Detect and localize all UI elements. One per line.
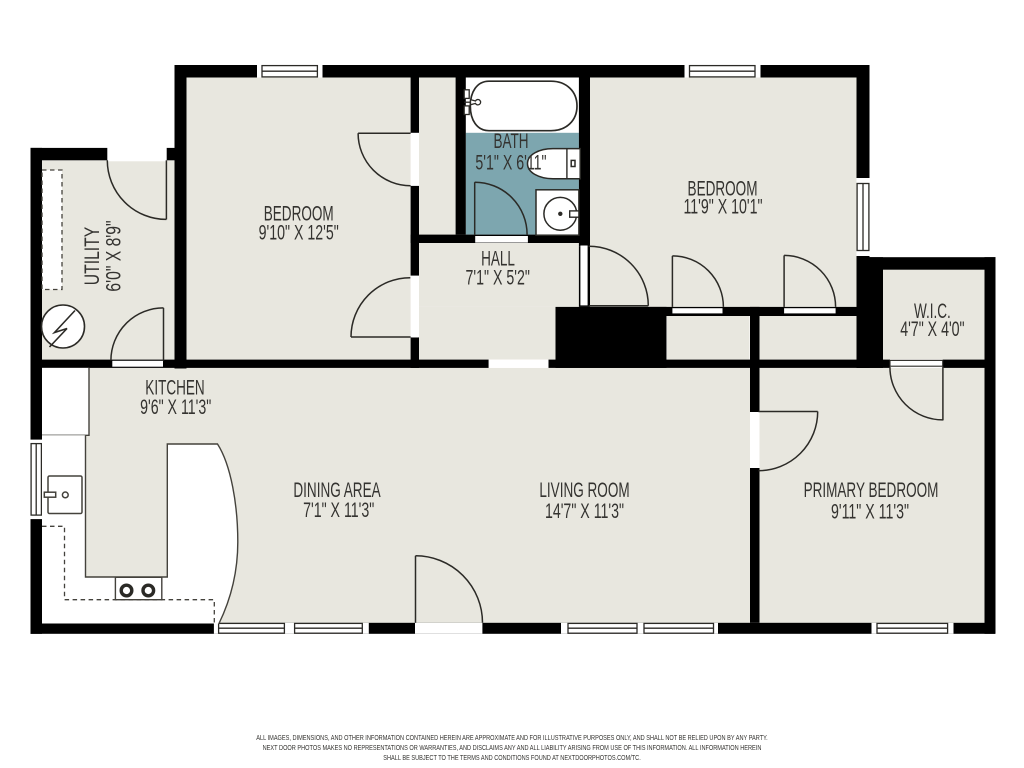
svg-text:BATH: BATH — [493, 129, 528, 153]
svg-text:NEXT DOOR PHOTOS MAKES NO REPR: NEXT DOOR PHOTOS MAKES NO REPRESENTATION… — [263, 744, 762, 752]
svg-text:4'7" X 4'0": 4'7" X 4'0" — [900, 317, 964, 341]
svg-text:11'9" X 10'1": 11'9" X 10'1" — [683, 195, 762, 219]
svg-text:6'0" X 8'9": 6'0" X 8'9" — [101, 220, 125, 291]
svg-text:PRIMARY BEDROOM: PRIMARY BEDROOM — [804, 478, 939, 502]
svg-text:UTILITY: UTILITY — [80, 226, 104, 285]
svg-text:9'11" X 11'3": 9'11" X 11'3" — [831, 500, 909, 524]
svg-text:7'1" X 11'3": 7'1" X 11'3" — [303, 498, 374, 522]
svg-text:14'7" X 11'3": 14'7" X 11'3" — [545, 499, 624, 523]
svg-text:7'1" X 5'2": 7'1" X 5'2" — [466, 266, 530, 290]
svg-text:5'1" X 6'11": 5'1" X 6'11" — [475, 150, 546, 174]
svg-text:SHALL BE SUBJECT TO THE TERMS: SHALL BE SUBJECT TO THE TERMS AND CONDIT… — [383, 754, 641, 762]
svg-text:9'10" X 12'5": 9'10" X 12'5" — [259, 221, 339, 245]
svg-text:9'6" X 11'3": 9'6" X 11'3" — [140, 395, 211, 419]
svg-text:ALL IMAGES, DIMENSIONS, AND OT: ALL IMAGES, DIMENSIONS, AND OTHER INFORM… — [256, 734, 768, 742]
